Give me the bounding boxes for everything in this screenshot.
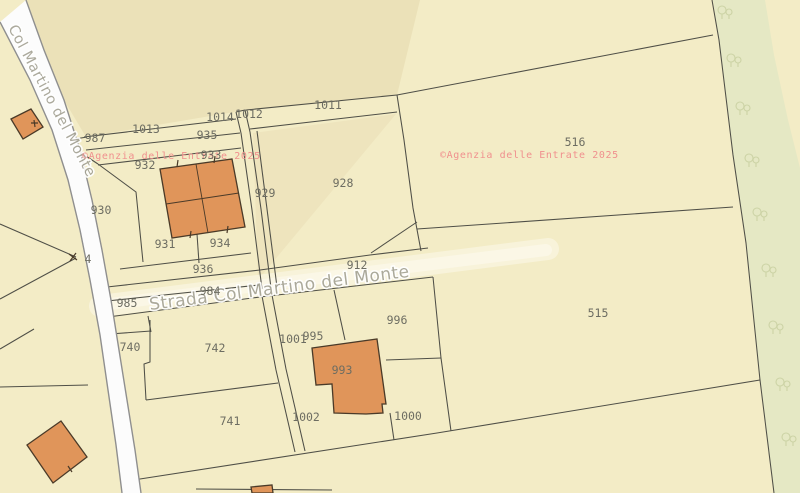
parcel-label-985: 985 bbox=[117, 296, 138, 310]
parcel-label-933: 933 bbox=[201, 148, 222, 162]
parcel-label-740: 740 bbox=[120, 340, 141, 354]
cadastral-map[interactable]: Strada Col Martino del Monte Col Martino… bbox=[0, 0, 800, 493]
parcel-label-515: 515 bbox=[588, 306, 609, 320]
parcel-label-1012: 1012 bbox=[235, 107, 263, 121]
parcel-label-932: 932 bbox=[135, 158, 156, 172]
parcel-label-993: 993 bbox=[332, 363, 353, 377]
parcel-label-1013: 1013 bbox=[132, 122, 160, 136]
parcel-label-4: 4 bbox=[85, 252, 92, 266]
cadastral-map-viewport[interactable]: Strada Col Martino del Monte Col Martino… bbox=[0, 0, 800, 493]
parcel-label-742: 742 bbox=[205, 341, 226, 355]
watermark-right: ©Agenzia delle Entrate 2025 bbox=[440, 150, 619, 161]
parcel-label-741: 741 bbox=[220, 414, 241, 428]
parcel-label-1014: 1014 bbox=[206, 110, 234, 124]
parcel-label-931: 931 bbox=[155, 237, 176, 251]
parcel-label-1000: 1000 bbox=[394, 409, 422, 423]
parcel-label-929: 929 bbox=[255, 186, 276, 200]
parcel-label-928: 928 bbox=[333, 176, 354, 190]
parcel-label-984: 984 bbox=[200, 284, 221, 298]
parcel-label-996: 996 bbox=[387, 313, 408, 327]
parcel-label-935: 935 bbox=[197, 128, 218, 142]
parcel-label-936: 936 bbox=[193, 262, 214, 276]
parcel-label-912: 912 bbox=[347, 258, 368, 272]
parcel-label-930: 930 bbox=[91, 203, 112, 217]
watermark-left: ©Agenzia delle Entrate 2025 bbox=[82, 151, 261, 162]
parcel-label-934: 934 bbox=[210, 236, 231, 250]
parcel-label-987: 987 bbox=[85, 131, 106, 145]
building-footprint bbox=[251, 485, 273, 493]
parcel-label-516: 516 bbox=[565, 135, 586, 149]
parcel-label-1002: 1002 bbox=[292, 410, 320, 424]
parcel-label-995: 995 bbox=[303, 329, 324, 343]
parcel-label-1011: 1011 bbox=[314, 98, 342, 112]
